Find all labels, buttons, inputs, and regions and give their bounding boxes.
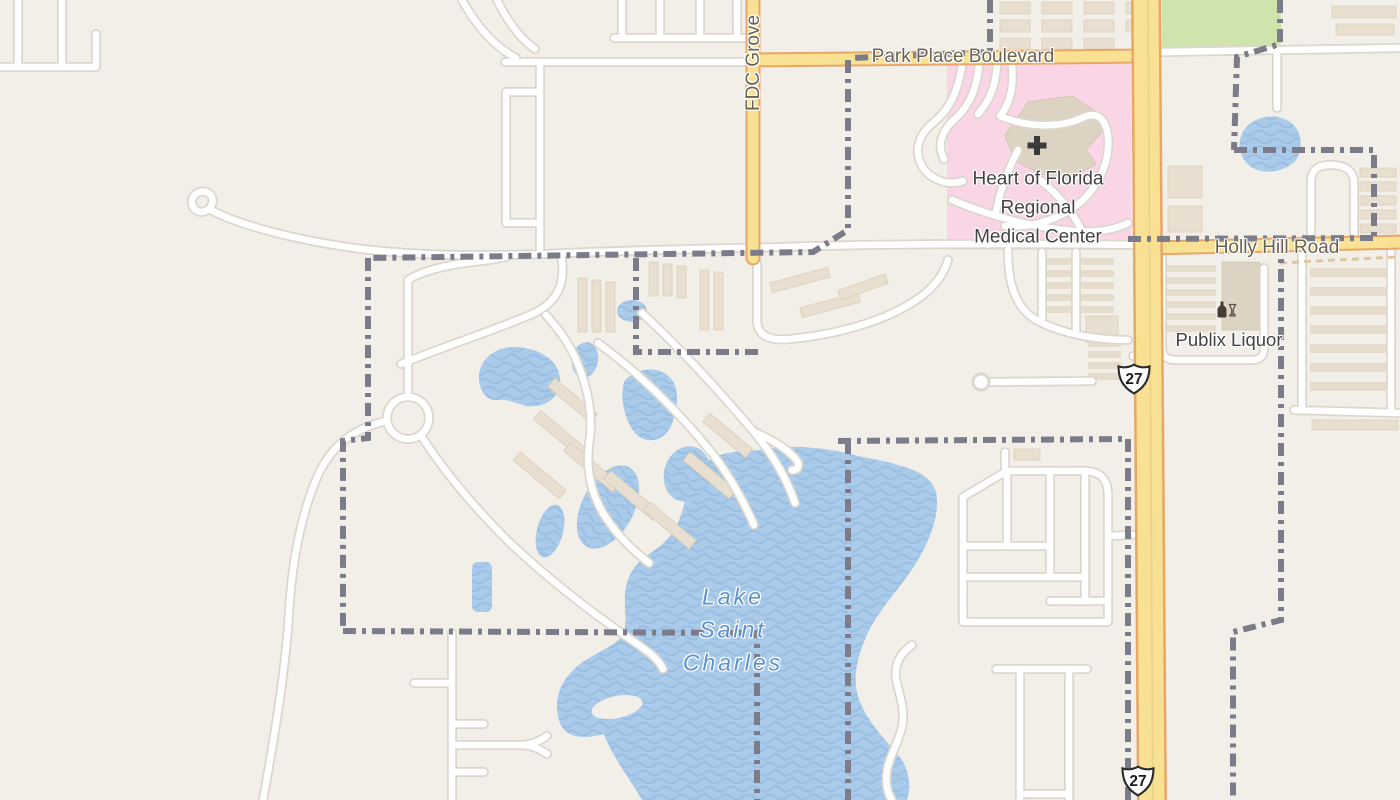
building (1084, 2, 1114, 14)
building (1042, 38, 1072, 49)
parking-row (1160, 325, 1216, 332)
us-route-shield-icon: 27 (1116, 363, 1152, 395)
building (649, 262, 658, 296)
building (606, 282, 615, 332)
building (677, 266, 686, 298)
parking-row (1160, 277, 1216, 284)
building (1042, 20, 1072, 32)
route-number: 27 (1125, 371, 1142, 388)
parking-row (1310, 287, 1392, 296)
building (592, 280, 601, 332)
building (1000, 2, 1030, 14)
parking-row (1310, 344, 1392, 353)
us-route-shield-icon: 27 (1120, 765, 1156, 797)
parking-row (1088, 351, 1121, 358)
building (1084, 20, 1114, 32)
building (1000, 20, 1030, 32)
parking-row (1160, 289, 1216, 296)
building (1332, 6, 1396, 18)
building (1168, 166, 1202, 198)
building (1084, 38, 1114, 49)
parking-row (1160, 265, 1216, 272)
building (700, 270, 709, 330)
building (1042, 2, 1072, 14)
parking-row (1310, 382, 1392, 391)
building (663, 264, 672, 296)
building (1336, 24, 1394, 35)
map-viewport[interactable]: Park Place Boulevard FDC Grove Holly Hil… (0, 0, 1400, 800)
building (1168, 206, 1202, 232)
parking-row (1160, 301, 1216, 308)
building (714, 272, 723, 330)
publix-building (1222, 262, 1260, 330)
parking-row (1310, 325, 1392, 334)
route-number: 27 (1129, 773, 1146, 790)
building (1360, 210, 1396, 219)
parking-row (1310, 268, 1392, 277)
building (1312, 420, 1398, 430)
pond (472, 562, 492, 612)
building (1360, 196, 1396, 205)
building (578, 278, 587, 332)
cul-de-sac (973, 374, 989, 390)
highway-us27 (1146, 0, 1153, 800)
map-canvas[interactable] (0, 0, 1400, 800)
building (1360, 182, 1396, 191)
parking-row (1160, 313, 1216, 320)
parking-row (1310, 363, 1392, 372)
building (1360, 224, 1396, 233)
building (1000, 38, 1030, 49)
building (1360, 168, 1396, 177)
parking-row (1310, 306, 1392, 315)
building (1014, 449, 1040, 460)
